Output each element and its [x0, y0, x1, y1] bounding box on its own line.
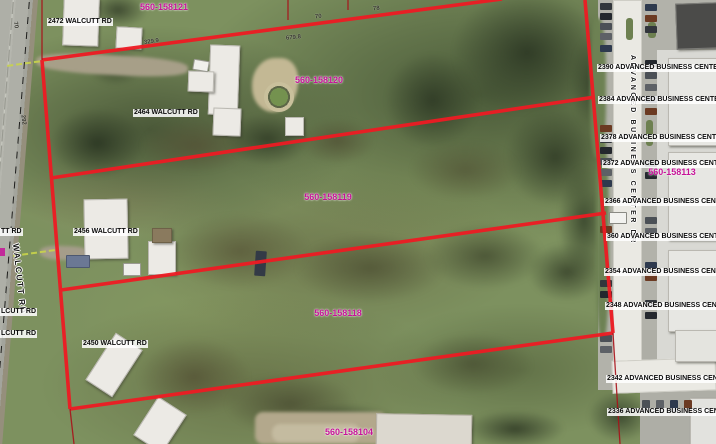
- address-label-clipped: LCUTT RD: [0, 308, 37, 316]
- parcel-number-label: 560-158120: [295, 75, 343, 85]
- dimension-label: 70: [315, 14, 322, 21]
- address-label: 2384 ADVANCED BUSINESS CENTER DR: [598, 96, 716, 104]
- parcel-number-label: 560-158113: [648, 167, 696, 177]
- address-label: 2348 ADVANCED BUSINESS CENTER: [605, 302, 716, 310]
- address-label: 2456 WALCUTT RD: [73, 228, 139, 236]
- address-label: 2342 ADVANCED BUSINESS CENTER: [606, 375, 716, 383]
- address-label: 2372 ADVANCED BUSINESS CENTER DR: [602, 160, 716, 168]
- address-label-clipped: LCUTT RD: [0, 330, 37, 338]
- address-label: 2472 WALCUTT RD: [47, 18, 113, 26]
- dimension-label: 78: [373, 6, 380, 13]
- road-label-advanced-business-center: ADVANCED BUSINESS CENTER DR: [629, 55, 636, 245]
- address-label: 2390 ADVANCED BUSINESS CENTER DR: [597, 64, 716, 72]
- parcel-number-label: 560-158119: [304, 192, 352, 202]
- dimension-label: 292: [19, 115, 26, 126]
- dimension-label: 70: [12, 21, 19, 28]
- parcel-number-label: 560-158118: [314, 308, 362, 318]
- address-label: 360 ADVANCED BUSINESS CENTER: [606, 233, 716, 241]
- parcel-number-label: 560-158121: [140, 2, 188, 12]
- address-label: 2378 ADVANCED BUSINESS CENTER DR: [600, 134, 716, 142]
- cut-parcel-label-fragment: [0, 248, 5, 256]
- map-viewport[interactable]: WALCUTT RD ADVANCED BUSINESS CENTER DR 5…: [0, 0, 716, 444]
- address-label: 2450 WALCUTT RD: [82, 340, 148, 348]
- address-label: 2464 WALCUTT RD: [133, 109, 199, 117]
- address-label: 2336 ADVANCED BUSINESS CENTER: [607, 408, 716, 416]
- parcel-number-label: 560-158104: [325, 427, 373, 437]
- address-label: 2366 ADVANCED BUSINESS CENTER DR: [604, 198, 716, 206]
- address-label: 2354 ADVANCED BUSINESS CENTER: [604, 268, 716, 276]
- address-label-clipped: TT RD: [0, 228, 23, 236]
